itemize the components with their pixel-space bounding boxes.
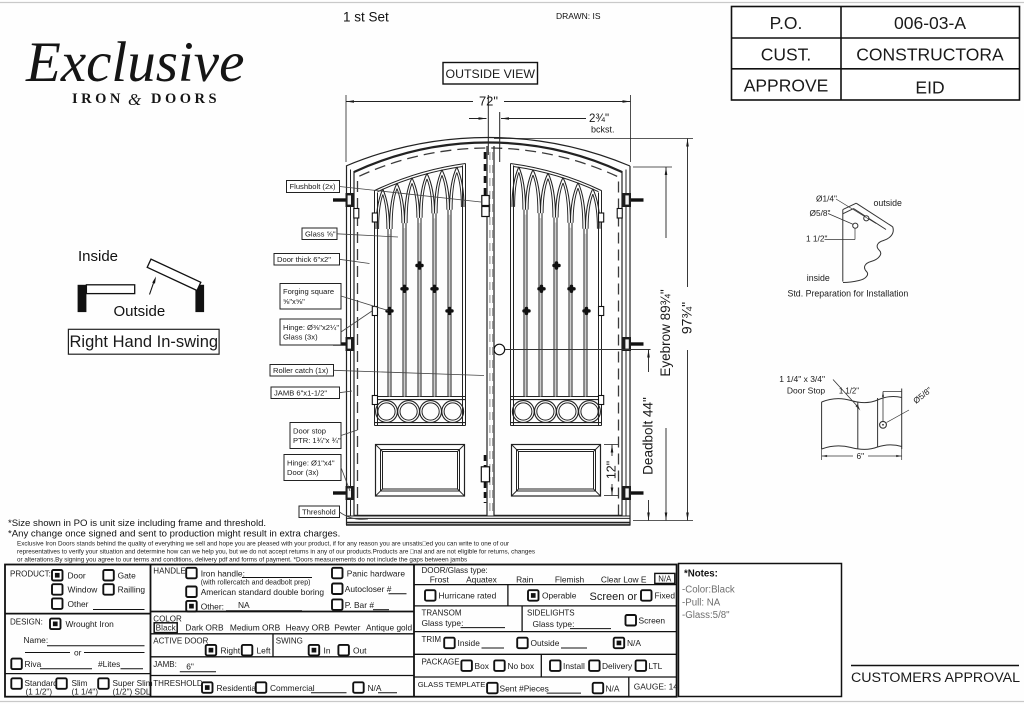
svg-text:Window: Window (68, 585, 99, 595)
svg-text:Black: Black (156, 624, 177, 633)
svg-text:Glass type:: Glass type: (533, 619, 575, 629)
svg-text:Flushbolt (2x): Flushbolt (2x) (290, 182, 336, 191)
svg-text:Rain: Rain (516, 574, 534, 584)
svg-text:Heavy ORB: Heavy ORB (286, 623, 331, 633)
svg-text:Roller catch (1x): Roller catch (1x) (273, 366, 329, 375)
svg-text:JAMB:: JAMB: (153, 660, 177, 669)
svg-text:N/A: N/A (368, 683, 382, 693)
svg-text:DRAWN: IS: DRAWN: IS (556, 11, 601, 21)
svg-text:Dark ORB: Dark ORB (185, 623, 224, 633)
svg-text:PTR: 1¾"x ¾": PTR: 1¾"x ¾" (293, 436, 341, 445)
svg-text:Hinge: Ø⅜"x2¼": Hinge: Ø⅜"x2¼" (283, 323, 339, 332)
svg-text:or: or (74, 647, 82, 657)
svg-text:PACKAGE: PACKAGE (422, 657, 460, 666)
svg-text:Door: Door (68, 571, 86, 581)
svg-text:Clear Low E: Clear Low E (601, 574, 647, 584)
svg-text:CUSTOMERS APPROVAL: CUSTOMERS APPROVAL (851, 670, 1020, 686)
svg-text:1 st Set: 1 st Set (343, 10, 389, 25)
svg-text:Outside: Outside (531, 638, 560, 648)
svg-text:Door Stop: Door Stop (787, 386, 826, 396)
svg-text:Door thick 6"x2": Door thick 6"x2" (277, 255, 331, 264)
svg-text:72": 72" (479, 94, 498, 109)
svg-text:1 1/2": 1 1/2" (839, 387, 859, 396)
svg-text:6": 6" (186, 662, 194, 672)
svg-text:Screen or: Screen or (590, 591, 638, 603)
svg-text:Outside: Outside (114, 303, 166, 320)
svg-text:Inside: Inside (458, 638, 481, 648)
svg-text:COLOR: COLOR (153, 614, 182, 623)
svg-text:Right: Right (221, 645, 241, 655)
svg-text:inside: inside (807, 273, 830, 283)
svg-text:Glass (3x): Glass (3x) (283, 333, 318, 342)
svg-text:Fixed: Fixed (655, 591, 676, 601)
svg-text:Other:: Other: (201, 601, 224, 611)
svg-text:CUST.: CUST. (761, 45, 812, 65)
svg-text:In: In (324, 645, 331, 655)
svg-text:Delivery: Delivery (602, 661, 633, 671)
svg-text:Wrought Iron: Wrought Iron (66, 619, 115, 629)
svg-text:Forging square: Forging square (283, 287, 334, 296)
svg-text:IRON: IRON (72, 91, 124, 107)
svg-text:GAUGE: 14: GAUGE: 14 (634, 681, 679, 691)
svg-text:-Pull: NA: -Pull: NA (682, 598, 721, 609)
svg-text:ACTIVE DOOR: ACTIVE DOOR (153, 637, 208, 646)
svg-text:Name:: Name: (24, 635, 49, 645)
svg-text:Ø5/8": Ø5/8" (810, 208, 831, 218)
svg-text:JAMB 6"x1-1/2": JAMB 6"x1-1/2" (274, 388, 327, 397)
svg-text:97¾": 97¾" (679, 302, 695, 334)
svg-text:TRANSOM: TRANSOM (422, 608, 462, 617)
svg-text:Inside: Inside (78, 248, 118, 265)
svg-text:outside: outside (874, 198, 902, 208)
svg-text:Screen: Screen (639, 616, 666, 626)
svg-text:Operable: Operable (542, 591, 577, 601)
svg-text:Exclusive Iron Doors stands be: Exclusive Iron Doors stands behind the q… (17, 541, 509, 548)
svg-text:THRESHOLD: THRESHOLD (153, 679, 203, 688)
svg-text:(1 1/2"): (1 1/2") (26, 687, 53, 696)
svg-text:PRODUCT:: PRODUCT: (10, 570, 51, 579)
svg-text:No box: No box (508, 661, 535, 671)
svg-text:Out: Out (353, 645, 367, 655)
svg-text:&: & (128, 90, 142, 109)
svg-text:Glass ⅝": Glass ⅝" (305, 229, 336, 238)
svg-text:(1 1/4"): (1 1/4") (72, 687, 99, 696)
svg-text:HANDLE: HANDLE (153, 567, 185, 576)
svg-text:TRIM: TRIM (422, 635, 442, 644)
svg-text:Pewter: Pewter (334, 623, 360, 633)
svg-text:-Glass:5/8": -Glass:5/8" (682, 610, 730, 621)
svg-text:Box: Box (475, 661, 490, 671)
svg-text:Right Hand In-swing: Right Hand In-swing (70, 333, 219, 351)
svg-text:Frost: Frost (430, 574, 450, 584)
svg-text:Medium ORB: Medium ORB (230, 623, 281, 633)
svg-text:Panic hardware: Panic hardware (347, 568, 406, 578)
svg-text:(with rollercatch and deadbolt: (with rollercatch and deadbolt prep) (201, 579, 311, 586)
svg-text:#Lites: #Lites (98, 659, 120, 669)
svg-text:LTL: LTL (649, 661, 663, 671)
svg-text:OUTSIDE VIEW: OUTSIDE VIEW (446, 67, 536, 81)
svg-text:Autocloser #: Autocloser # (345, 584, 392, 594)
svg-text:representatives to verify your: representatives to verify your situation… (17, 549, 535, 556)
svg-text:Other: Other (68, 599, 89, 609)
svg-text:N/A: N/A (627, 638, 641, 648)
svg-text:(1/2") SDL: (1/2") SDL (113, 687, 151, 696)
svg-text:Residential: Residential (217, 683, 259, 693)
svg-text:Gate: Gate (118, 571, 136, 581)
svg-text:*Size shown in PO is unit size: *Size shown in PO is unit size including… (8, 518, 266, 529)
svg-text:Install: Install (563, 661, 585, 671)
svg-text:⅝"x⅝": ⅝"x⅝" (283, 297, 305, 306)
svg-text:6": 6" (857, 451, 865, 461)
svg-text:Flemish: Flemish (555, 574, 585, 584)
svg-text:Std. Preparation for Installat: Std. Preparation for Installation (788, 289, 909, 299)
svg-text:N/A: N/A (606, 683, 620, 693)
svg-text:Antique gold: Antique gold (366, 623, 413, 633)
svg-text:SIDELIGHTS: SIDELIGHTS (527, 608, 575, 617)
svg-text:APPROVE: APPROVE (744, 76, 829, 96)
svg-text:Sent #Pieces: Sent #Pieces (500, 683, 549, 693)
svg-text:CONSTRUCTORA: CONSTRUCTORA (856, 45, 1004, 65)
svg-text:Hurricane rated: Hurricane rated (439, 591, 497, 601)
svg-text:bckst.: bckst. (591, 125, 615, 135)
svg-text:Threshold: Threshold (302, 507, 336, 516)
svg-text:12": 12" (605, 461, 619, 479)
svg-text:006-03-A: 006-03-A (894, 13, 966, 33)
svg-text:Iron handle:: Iron handle: (201, 568, 245, 578)
svg-text:Aquatex: Aquatex (466, 574, 498, 584)
svg-text:Railling: Railling (118, 585, 146, 595)
svg-text:P. Bar #: P. Bar # (345, 600, 375, 610)
svg-text:Left: Left (257, 645, 272, 655)
svg-text:*Any change once signed and se: *Any change once signed and sent to prod… (8, 529, 340, 540)
svg-text:2¾": 2¾" (589, 113, 609, 125)
svg-text:Deadbolt 44": Deadbolt 44" (641, 397, 656, 475)
svg-text:American standard double borin: American standard double boring (201, 587, 325, 597)
svg-text:DOORS: DOORS (151, 91, 220, 107)
svg-text:1 1/2": 1 1/2" (806, 234, 827, 244)
svg-text:EID: EID (915, 78, 944, 98)
svg-text:NA: NA (238, 600, 250, 610)
svg-text:Door (3x): Door (3x) (287, 468, 319, 477)
svg-text:Glass type:: Glass type: (422, 618, 464, 628)
svg-text:SWING: SWING (276, 637, 303, 646)
svg-text:Eyebrow 89¾": Eyebrow 89¾" (658, 289, 673, 377)
svg-text:-Color:Black: -Color:Black (682, 585, 735, 596)
svg-text:Riva: Riva (25, 659, 42, 669)
svg-text:Hinge: Ø1"x4": Hinge: Ø1"x4" (287, 458, 335, 467)
svg-text:Ø1/4": Ø1/4" (816, 194, 837, 204)
svg-text:Commercial: Commercial (270, 683, 315, 693)
svg-text:Exclusive: Exclusive (25, 31, 244, 94)
svg-text:or alterations.By signing you: or alterations.By signing you agree to o… (17, 557, 467, 564)
svg-text:DESIGN:: DESIGN: (10, 618, 43, 627)
svg-text:GLASS TEMPLATE: GLASS TEMPLATE (418, 680, 486, 689)
svg-text:*Notes:: *Notes: (684, 569, 718, 580)
svg-text:P.O.: P.O. (770, 13, 803, 33)
svg-text:1 1/4" x 3/4": 1 1/4" x 3/4" (779, 374, 825, 384)
svg-text:N/A: N/A (658, 575, 672, 584)
svg-text:Door stop: Door stop (293, 426, 326, 435)
